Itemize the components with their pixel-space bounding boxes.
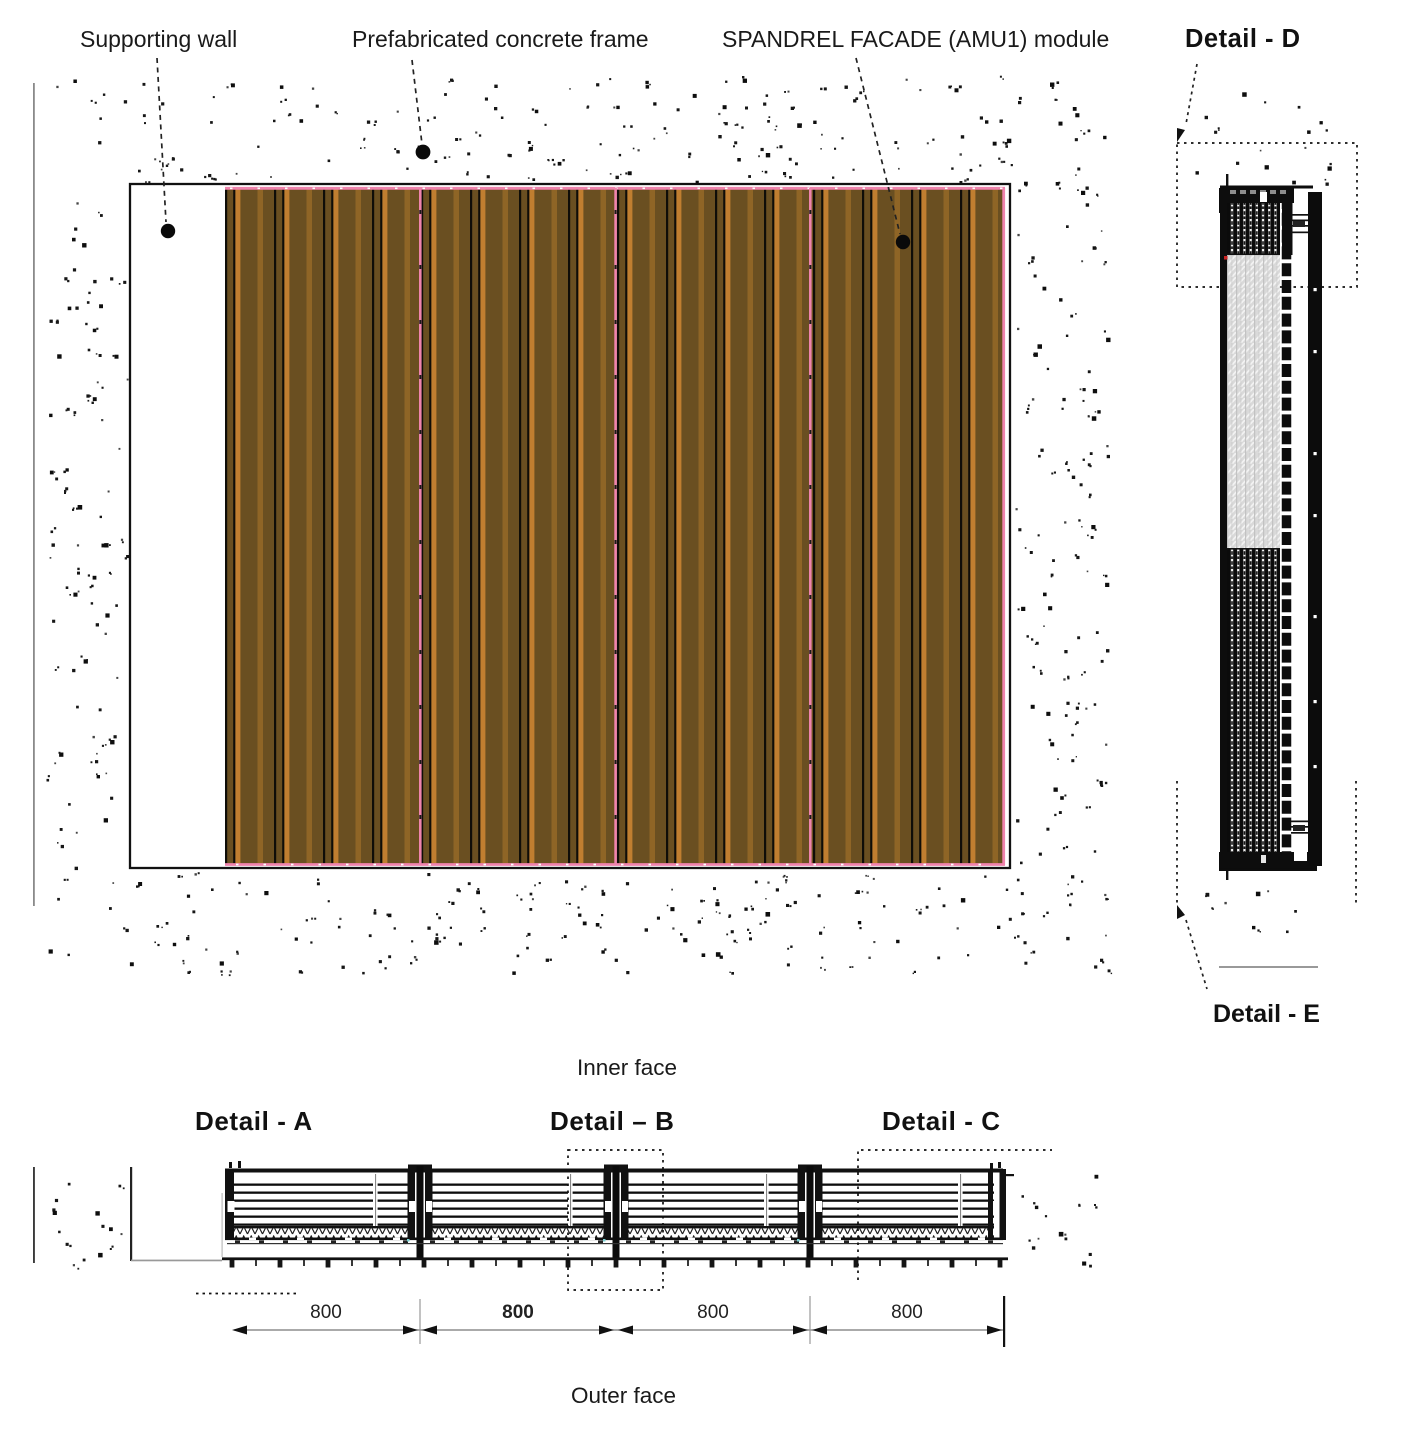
svg-text:800: 800 [310,1302,342,1323]
svg-text:Outer face: Outer face [571,1383,676,1408]
svg-text:Detail - C: Detail - C [882,1106,1001,1136]
svg-text:Detail – B: Detail – B [550,1106,675,1136]
svg-text:SPANDREL FACADE (AMU1) module: SPANDREL FACADE (AMU1) module [722,26,1109,52]
svg-text:800: 800 [502,1302,534,1323]
svg-text:Inner face: Inner face [577,1055,677,1080]
svg-text:Detail - A: Detail - A [195,1106,313,1136]
svg-text:Detail - D: Detail - D [1185,25,1301,53]
svg-text:Detail - E: Detail - E [1213,1000,1320,1028]
svg-text:800: 800 [697,1302,729,1323]
svg-text:800: 800 [891,1302,923,1323]
svg-text:Prefabricated concrete frame: Prefabricated concrete frame [352,26,649,52]
svg-text:Supporting wall: Supporting wall [80,26,237,52]
